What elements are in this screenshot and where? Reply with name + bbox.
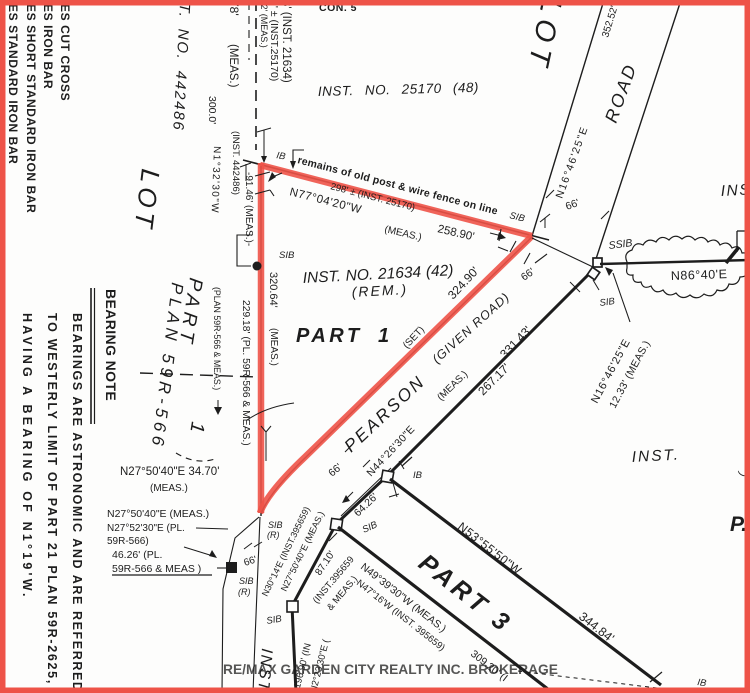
svg-text:RE/MAX GARDEN CITY REALTY INC.: RE/MAX GARDEN CITY REALTY INC. BROKERAGE <box>223 662 558 677</box>
svg-text:59R-566 & MEAS ): 59R-566 & MEAS ) <box>112 563 201 575</box>
svg-text:1: 1 <box>378 325 389 347</box>
svg-text:N86°40'E: N86°40'E <box>671 267 728 283</box>
svg-text:ES IRON BAR: ES IRON BAR <box>41 4 55 89</box>
svg-text:N27°50'40"E 34.70': N27°50'40"E 34.70' <box>120 466 219 478</box>
svg-text:3' (INST. 21634): 3' (INST. 21634) <box>280 0 292 83</box>
svg-text:300.0': 300.0' <box>206 96 218 124</box>
svg-text:(R): (R) <box>238 587 251 597</box>
svg-text:(PLAN 59R-566 & MEAS.): (PLAN 59R-566 & MEAS.) <box>212 287 222 390</box>
svg-text:BEARING NOTE: BEARING NOTE <box>103 289 119 401</box>
svg-text:SIB: SIB <box>268 520 283 530</box>
svg-text:SIB: SIB <box>279 250 295 261</box>
svg-text:(R): (R) <box>267 530 280 540</box>
svg-text:(MEAS.): (MEAS.) <box>150 483 188 494</box>
svg-text:BEARINGS ARE ASTRONOMIC AND AR: BEARINGS ARE ASTRONOMIC AND ARE REFERRED <box>70 313 84 693</box>
svg-text:SIB: SIB <box>599 296 616 309</box>
svg-text:46.26' (PL.: 46.26' (PL. <box>112 549 162 561</box>
svg-text:(MEAS.): (MEAS.) <box>227 44 239 88</box>
svg-text:PART: PART <box>296 325 363 347</box>
svg-text:(INST. 442486): (INST. 442486) <box>230 131 241 195</box>
svg-text:ES SHORT STANDARD IRON BAR: ES SHORT STANDARD IRON BAR <box>24 4 38 213</box>
svg-text:TO WESTERLY LIMIT OF PART 21 P: TO WESTERLY LIMIT OF PART 21 PLAN 59R-26… <box>45 313 59 685</box>
svg-text:ES STANDARD IRON BAR: ES STANDARD IRON BAR <box>6 4 20 164</box>
svg-text:N27°50'40"E (MEAS.): N27°50'40"E (MEAS.) <box>107 508 209 520</box>
svg-text:HAVING A BEARING OF N1°19'W.: HAVING A BEARING OF N1°19'W. <box>20 313 34 600</box>
svg-text:320.64': 320.64' <box>267 272 279 308</box>
svg-text:5' ± (INST.25170): 5' ± (INST.25170) <box>268 0 280 81</box>
svg-text:(REM.): (REM.) <box>351 281 408 300</box>
svg-text:2.32' (MEAS.): 2.32' (MEAS.) <box>259 0 269 48</box>
svg-text:-91.46' (MEAS.)-: -91.46' (MEAS.)- <box>243 172 254 246</box>
svg-text:SIB: SIB <box>239 576 254 586</box>
svg-text:INST.: INST. <box>631 446 680 465</box>
svg-text:59R-566): 59R-566) <box>107 536 149 547</box>
svg-text:(MEAS.): (MEAS.) <box>268 328 279 366</box>
svg-text:229.18' (PL. 59R-566 & MEAS.): 229.18' (PL. 59R-566 & MEAS.) <box>240 300 251 446</box>
svg-text:IB: IB <box>413 470 423 481</box>
svg-text:ES CUT CROSS: ES CUT CROSS <box>58 4 72 101</box>
svg-text:N27°52'30"E (PL.: N27°52'30"E (PL. <box>107 523 185 534</box>
